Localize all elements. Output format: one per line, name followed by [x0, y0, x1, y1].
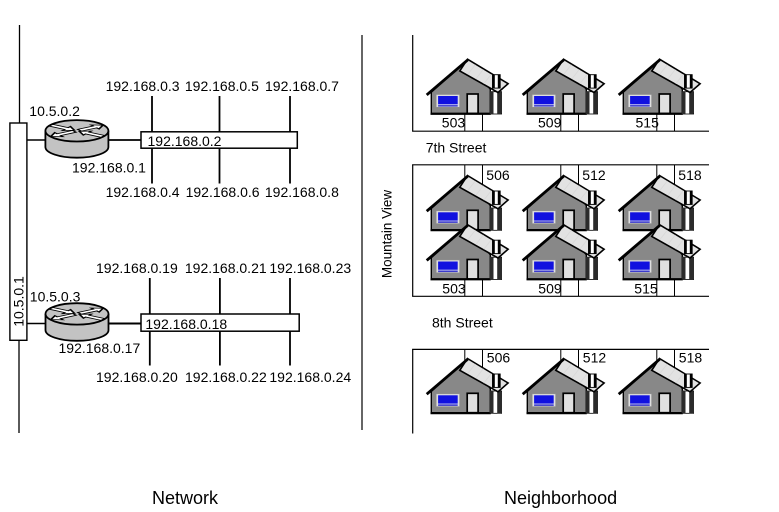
- svg-text:192.168.0.23: 192.168.0.23: [269, 260, 351, 276]
- svg-text:192.168.0.18: 192.168.0.18: [145, 316, 227, 332]
- svg-text:192.168.0.22: 192.168.0.22: [185, 369, 267, 385]
- svg-text:Neighborhood: Neighborhood: [504, 488, 617, 508]
- svg-text:192.168.0.4: 192.168.0.4: [106, 184, 180, 200]
- svg-text:509: 509: [538, 115, 562, 131]
- svg-text:192.168.0.7: 192.168.0.7: [265, 78, 339, 94]
- svg-text:515: 515: [636, 115, 660, 131]
- svg-text:503: 503: [442, 115, 466, 131]
- svg-text:10.5.0.1: 10.5.0.1: [10, 276, 26, 327]
- svg-text:506: 506: [486, 167, 510, 183]
- svg-text:515: 515: [634, 281, 658, 297]
- svg-text:192.168.0.6: 192.168.0.6: [186, 184, 260, 200]
- svg-text:192.168.0.8: 192.168.0.8: [265, 184, 339, 200]
- svg-text:192.168.0.21: 192.168.0.21: [185, 260, 267, 276]
- svg-text:518: 518: [679, 350, 703, 366]
- svg-text:192.168.0.19: 192.168.0.19: [96, 260, 178, 276]
- svg-text:192.168.0.5: 192.168.0.5: [185, 78, 259, 94]
- svg-text:10.5.0.2: 10.5.0.2: [29, 103, 80, 119]
- svg-text:7th Street: 7th Street: [426, 140, 487, 156]
- svg-text:192.168.0.3: 192.168.0.3: [106, 78, 180, 94]
- svg-text:506: 506: [487, 350, 511, 366]
- svg-text:192.168.0.17: 192.168.0.17: [59, 340, 141, 356]
- svg-text:518: 518: [678, 167, 702, 183]
- svg-text:512: 512: [583, 350, 607, 366]
- svg-text:8th Street: 8th Street: [432, 315, 493, 331]
- svg-text:509: 509: [538, 281, 562, 297]
- svg-text:192.168.0.24: 192.168.0.24: [269, 369, 351, 385]
- svg-text:192.168.0.2: 192.168.0.2: [148, 133, 222, 149]
- svg-text:192.168.0.1: 192.168.0.1: [72, 160, 146, 176]
- svg-text:512: 512: [582, 167, 606, 183]
- svg-text:Mountain View: Mountain View: [380, 190, 395, 279]
- svg-text:503: 503: [442, 281, 466, 297]
- svg-text:Network: Network: [152, 488, 219, 508]
- svg-text:10.5.0.3: 10.5.0.3: [30, 289, 81, 305]
- svg-text:192.168.0.20: 192.168.0.20: [96, 369, 178, 385]
